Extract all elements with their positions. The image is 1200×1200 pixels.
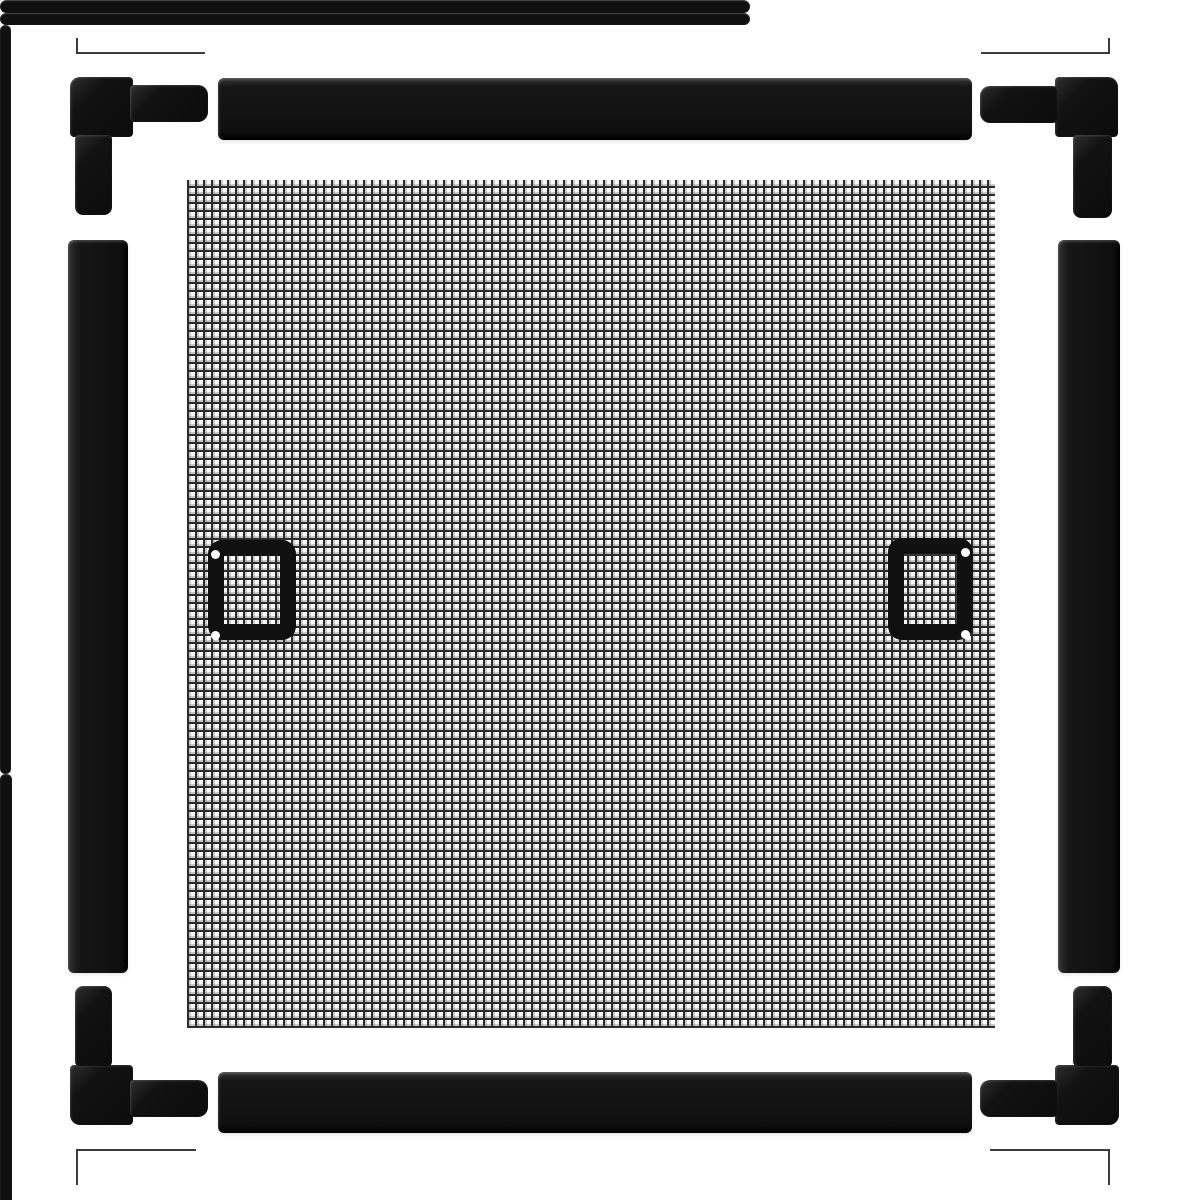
top-right-corner-mark [981,38,1110,54]
corner-elbow [1055,77,1118,137]
screw-hole [961,630,970,639]
top-spline-strip [0,0,750,13]
corner-elbow [1055,1065,1119,1125]
corner-arm-horizontal [980,1080,1057,1117]
corner-arm-horizontal [130,85,208,122]
right-frame-bar [1058,240,1120,973]
top-left-corner-mark [76,38,205,54]
left-frame-bar [68,240,128,973]
corner-arm-vertical [1073,986,1112,1066]
screw-hole [961,548,970,557]
right-spline-strip [0,774,12,1200]
left-pull-handle [208,540,296,640]
bottom-left-corner-mark [76,1149,196,1185]
screw-hole [211,631,220,640]
bottom-frame-bar [218,1072,972,1133]
corner-arm-vertical [1073,135,1112,218]
corner-arm-horizontal [130,1080,208,1117]
bottom-right-corner-mark [990,1149,1110,1185]
right-pull-handle [888,538,973,640]
corner-arm-vertical [75,986,112,1066]
corner-elbow [70,77,133,137]
product-image-window-screen-kit [0,0,1200,1200]
screen-mesh-panel [187,180,995,1028]
top-frame-bar [218,78,972,140]
corner-elbow [70,1065,133,1125]
bottom-spline-strip [0,13,750,25]
corner-arm-vertical [75,135,112,215]
corner-arm-horizontal [980,86,1057,123]
left-spline-strip [0,25,11,774]
screw-hole [211,550,220,559]
